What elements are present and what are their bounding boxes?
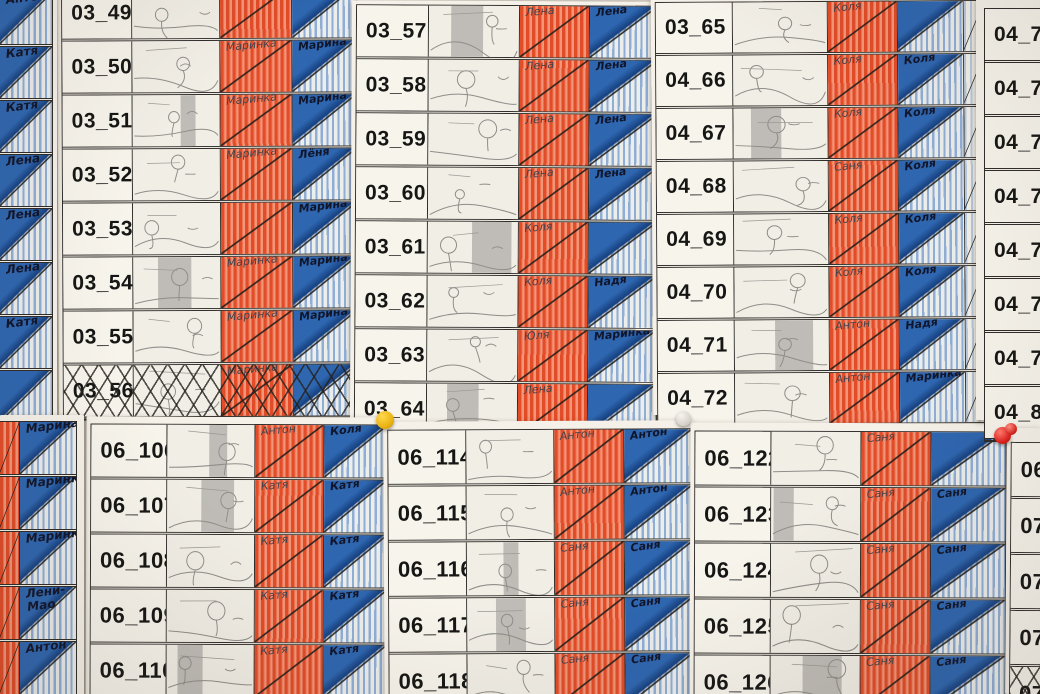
storyboard-thumbnail (428, 168, 519, 219)
orange-status-cell: Маринка (221, 311, 293, 362)
scene-row: 04_70КоляКоля (657, 266, 985, 321)
scene-code-cell: 03_61 (356, 221, 428, 272)
scene-code: 06_124 (704, 557, 771, 583)
blue-assignee-name: Катя (329, 645, 360, 657)
scene-code-cell: 04_73 (985, 9, 1040, 60)
orange-status-cell: Саня (861, 488, 931, 541)
scene-row: 03_59ЛенаЛена (356, 113, 657, 169)
scene-code-cell: 06_107 (91, 479, 167, 531)
storyboard-thumbnail (733, 55, 828, 106)
scene-table: 03_49МаринкаМарина03_50МаринкаМарина03_5… (61, 0, 359, 421)
scene-code: 06_108 (100, 548, 167, 574)
orange-assignee-name: Саня (866, 544, 895, 557)
scene-code: 06_114 (397, 444, 466, 470)
scene-code: 03_52 (72, 163, 133, 187)
scene-code: 04_76 (994, 185, 1040, 209)
blue-status-cell: Лени-Мао (20, 587, 76, 639)
scene-code-cell: 06_123 (695, 487, 771, 540)
scene-code: 03_51 (72, 109, 133, 133)
blue-assignee-name: Саня (630, 653, 661, 666)
scene-code-cell: 04_72 (658, 374, 735, 424)
blue-assignee-name: Марина (298, 202, 348, 215)
sketch-drawing (467, 598, 554, 651)
scene-code: 03_50 (71, 55, 132, 79)
scene-code: 04_70 (666, 281, 727, 305)
blue-status-cell: Антон (625, 485, 693, 538)
sketch-drawing (133, 95, 220, 146)
blue-assignee-name: Саня (630, 597, 661, 610)
storyboard-thumbnail (132, 41, 220, 92)
sketch-drawing (733, 2, 827, 53)
storyboard-thumbnail (133, 203, 221, 254)
scene-row: Маринка (0, 477, 76, 532)
orange-assignee-name: Лена (524, 168, 554, 181)
orange-assignee-name: Маринка (225, 41, 277, 54)
orange-status-cell: Саня (829, 161, 899, 211)
scene-code-cell: 06_108 (91, 534, 167, 586)
blue-status-cell: Саня (931, 488, 1005, 541)
blue-assignee-name: Лени-Мао (25, 587, 76, 613)
blue-status-cell: Коля (899, 213, 965, 263)
scene-row: Лени-Мао (0, 587, 76, 642)
sketch-drawing (427, 276, 517, 327)
orange-status-cell: Коля (828, 55, 898, 105)
sketch-drawing (167, 480, 254, 532)
scene-code-cell: 03_62 (355, 275, 427, 326)
scene-row: 03_54МаринкаМарина (63, 256, 357, 311)
partial-sheet-edge: МаринаМаринкаМаринкаЛени-МаоАнтонКатя (0, 415, 84, 694)
blue-status-cell: Лена (0, 209, 52, 260)
scene-row: Антон (0, 642, 76, 694)
blue-status-cell: Марина (293, 202, 357, 253)
scene-row: 04_78 (985, 279, 1040, 333)
blue-status-cell: Коля (324, 425, 387, 477)
blue-assignee-name: Коля (904, 213, 937, 226)
scene-code-cell: 06_106 (91, 424, 167, 476)
blue-status-cell: Антон (20, 642, 76, 694)
scene-row: Антон (0, 0, 52, 47)
orange-status-cell: Антон (255, 425, 324, 477)
blue-assignee-name: Марина (297, 40, 347, 53)
blue-status-cell: Катя (324, 535, 387, 587)
blue-assignee-name: Саня (936, 488, 967, 500)
orange-status-cell: Маринка (220, 0, 292, 38)
scene-row: 03_60ЛенаЛена (356, 167, 657, 223)
orange-assignee-name: Лена (523, 384, 553, 397)
scene-code: 03_57 (366, 19, 427, 43)
orange-status-cell (0, 477, 20, 529)
blue-status-cell: Марина (20, 422, 76, 474)
scene-row: 04_67КоляКоля (656, 107, 984, 162)
scene-code: 07_ (1020, 512, 1040, 538)
scene-row: 04_66КоляКоля (656, 54, 984, 109)
storyboard-thumbnail (467, 486, 555, 539)
scene-row: 06_106АнтонКоля (91, 424, 387, 480)
scene-code: 03_54 (72, 271, 133, 295)
orange-status-cell: Антон (830, 373, 900, 423)
orange-status-cell (0, 642, 20, 694)
scene-code-cell: 03_53 (63, 203, 133, 254)
blue-status-cell: Лена (0, 155, 52, 206)
scene-code: 04_74 (994, 77, 1040, 101)
storyboard-thumbnail (467, 598, 555, 651)
sketch-drawing (735, 373, 829, 424)
blue-assignee-name: Саня (936, 600, 967, 612)
sketch-drawing (167, 535, 254, 587)
scene-code: 07_ (1019, 680, 1040, 694)
orange-assignee-name: Маринка (226, 95, 278, 108)
scene-row: Лена (0, 209, 52, 263)
scene-code: 04_77 (994, 239, 1040, 263)
scene-code-cell: 04_74 (985, 63, 1040, 114)
orange-assignee-name: Катя (260, 590, 288, 603)
orange-status-cell: Коля (518, 276, 588, 327)
scene-row: 06_108КатяКатя (91, 534, 387, 590)
scene-row: 03_57ЛенаЛена (357, 5, 658, 61)
storyboard-thumbnail (428, 222, 519, 273)
orange-status-cell: Катя (255, 590, 324, 642)
orange-status-cell: Катя (255, 480, 324, 532)
sketch-drawing (134, 365, 221, 416)
sketch-drawing (133, 257, 220, 308)
sketch-drawing (429, 6, 519, 57)
blue-status-cell: Надя (900, 319, 966, 369)
scene-row: 06_109КатяКатя (91, 589, 387, 645)
blue-assignee-name: Коля (329, 425, 362, 437)
sketch-drawing (132, 0, 219, 38)
orange-assignee-name: Саня (866, 432, 895, 445)
orange-assignee-name: Маринка (226, 149, 278, 162)
sketch-drawing (428, 114, 518, 165)
blue-assignee-name: Коля (903, 54, 936, 67)
orange-status-cell: Маринка (222, 365, 294, 416)
blue-status-cell: Лена (0, 263, 52, 314)
scene-row: 06_122Саня (695, 431, 1005, 488)
partial-sheet-edge: АнтонКатяКатяЛенаЛенаЛенаКатя (0, 0, 57, 416)
scene-row: 06_115АнтонАнтон (389, 485, 693, 543)
orange-assignee-name: Саня (560, 654, 589, 667)
scene-code: 04_80 (994, 401, 1040, 425)
production-sheet: 06_114АнтонАнтон06_115АнтонАнтон06_116Са… (383, 420, 695, 694)
blue-status-cell: Саня (625, 653, 693, 694)
storyboard-thumbnail (133, 311, 221, 362)
scene-row: Катя (0, 47, 52, 101)
orange-assignee-name: Саня (560, 542, 589, 555)
orange-status-cell (0, 532, 20, 584)
scene-row: 03_58ЛенаЛена (357, 59, 658, 115)
orange-status-cell: Катя (255, 645, 324, 694)
blue-status-cell: Катя (324, 645, 387, 694)
scene-code-cell: 03_51 (63, 95, 133, 146)
sketch-drawing (167, 590, 254, 642)
scene-code-cell: 04_68 (657, 162, 734, 212)
orange-status-cell: Лена (519, 114, 589, 165)
blue-status-cell (294, 364, 358, 415)
scene-code: 06_125 (704, 613, 771, 639)
blue-assignee-name: Марина (298, 310, 348, 323)
orange-status-cell: Антон (830, 320, 900, 370)
blue-assignee-name: Лена (5, 209, 41, 222)
blue-status-cell: Саня (931, 544, 1005, 597)
orange-assignee-name: Коля (833, 108, 862, 121)
blue-assignee-name: Маринка (25, 477, 76, 490)
scene-code-cell: 03_65 (656, 3, 733, 53)
orange-status-cell: Саня (861, 656, 931, 694)
orange-status-cell: Саня (555, 654, 625, 694)
sketch-drawing (429, 60, 519, 111)
scene-code-cell: 06_122 (695, 431, 771, 484)
scene-row: 07_ (1011, 555, 1040, 611)
orange-assignee-name: Саня (866, 488, 895, 501)
orange-assignee-name: Маринка (227, 365, 279, 378)
scene-code-cell: 06_116 (389, 542, 467, 595)
storyboard-wall-photo: 03_49МаринкаМарина03_50МаринкаМарина03_5… (0, 0, 1040, 694)
sketch-drawing (734, 161, 828, 212)
scene-row: 06_ (1011, 443, 1040, 499)
orange-status-cell: Коля (828, 2, 898, 52)
blue-assignee-name: Лена (595, 114, 628, 126)
blue-status-cell: Маринка (588, 330, 656, 381)
orange-assignee-name: Коля (834, 267, 863, 280)
orange-assignee-name: Катя (260, 480, 288, 493)
scene-row: 04_77 (985, 225, 1040, 279)
blue-assignee-name: Саня (936, 656, 967, 668)
scene-code: 03_60 (365, 181, 426, 205)
sketch-drawing (167, 425, 254, 477)
storyboard-thumbnail (467, 542, 555, 595)
storyboard-thumbnail (167, 535, 255, 587)
scene-code: 04_69 (666, 228, 727, 252)
scene-code-cell: 06_118 (389, 654, 467, 694)
sketch-drawing (132, 41, 219, 92)
orange-assignee-name: Саня (834, 161, 863, 174)
scene-code-cell: 04_71 (658, 321, 735, 371)
scene-code: 03_55 (73, 325, 134, 349)
orange-assignee-name: Юля (523, 330, 549, 343)
blue-assignee-name: Лена (5, 263, 41, 276)
orange-status-cell: Саня (555, 598, 625, 651)
scene-code-cell: 04_79 (985, 333, 1040, 384)
orange-assignee-name: Лена (525, 6, 555, 19)
scene-table: 06_106АнтонКоля06_107КатяКатя06_108КатяК… (89, 423, 388, 694)
orange-status-cell: Антон (555, 486, 625, 539)
scene-row: 07_ (1010, 611, 1040, 667)
blue-assignee-name: Марина (25, 422, 76, 435)
orange-status-cell (0, 422, 20, 474)
orange-assignee-name: Маринка (226, 257, 278, 270)
scene-code-cell: 03_56 (64, 365, 134, 416)
scene-code: 06_ (1021, 456, 1040, 482)
orange-status-cell: Маринка (221, 95, 293, 146)
orange-assignee-name: Коля (524, 222, 553, 235)
scene-code-cell: 04_66 (656, 56, 733, 106)
orange-assignee-name: Катя (260, 645, 288, 658)
production-sheet: 03_65Коля04_66КоляКоля04_67КоляКоля04_68… (651, 0, 988, 415)
orange-assignee-name: Коля (833, 2, 862, 15)
scene-row: 06_114АнтонАнтон (388, 429, 692, 487)
storyboard-thumbnail (735, 373, 830, 424)
blue-status-cell: Антон (0, 0, 52, 44)
orange-status-cell: Саня (861, 544, 931, 597)
scene-code-cell: 03_63 (355, 329, 427, 380)
blue-status-cell: Маринка (900, 372, 966, 422)
blue-assignee-name: Лена (595, 6, 628, 18)
scene-row: 03_56Маринка (64, 364, 358, 419)
scene-row: 04_71АнтонНадя (658, 319, 986, 374)
production-sheet: 03_49МаринкаМарина03_50МаринкаМарина03_5… (57, 0, 357, 417)
orange-status-cell: Саня (555, 542, 625, 595)
blue-assignee-name: Коля (903, 107, 936, 120)
scene-table: 06_07_07_07_07_ (1009, 442, 1040, 694)
scene-code-cell: 07_ (1010, 667, 1040, 694)
storyboard-thumbnail (167, 645, 255, 694)
sketch-drawing (733, 55, 827, 106)
blue-status-cell: Маринка (20, 532, 76, 584)
storyboard-thumbnail (771, 488, 861, 541)
orange-status-cell: Маринка (221, 149, 293, 200)
orange-assignee-name: Антон (260, 425, 296, 438)
storyboard-thumbnail (429, 60, 520, 111)
scene-row: 03_63ЮляМаринка (355, 329, 656, 385)
scene-code: 06_123 (704, 501, 771, 527)
blue-status-cell: Катя (0, 317, 52, 368)
blue-assignee-name: Маринка (593, 330, 650, 342)
blue-status-cell: Марина (292, 0, 356, 38)
sketch-drawing (428, 168, 518, 219)
sketch-drawing (133, 203, 220, 254)
scene-code-cell: 06_117 (389, 598, 467, 651)
scene-code: 03_53 (72, 217, 133, 241)
scene-code: 03_56 (73, 379, 134, 403)
scene-code: 04_67 (665, 122, 726, 146)
blue-status-cell: Коля (899, 266, 965, 316)
scene-row: 04_69КоляКоля (657, 213, 985, 268)
blue-assignee-name: Антон (5, 0, 47, 6)
blue-assignee-name: Марина (298, 94, 348, 107)
sketch-drawing (167, 645, 254, 694)
orange-assignee-name: Антон (835, 373, 871, 386)
blue-status-cell: Лена (589, 114, 657, 165)
orange-status-cell: Саня (861, 432, 931, 485)
scene-code-cell: 06_124 (695, 543, 771, 596)
scene-row: 06_117СаняСаня (389, 597, 693, 655)
scene-code-cell: 04_77 (985, 225, 1040, 276)
scene-table: 03_65Коля04_66КоляКоля04_67КоляКоля04_68… (655, 0, 988, 428)
sketch-drawing (427, 330, 517, 381)
scene-code-cell: 04_78 (985, 279, 1040, 330)
storyboard-thumbnail (771, 656, 861, 694)
orange-assignee-name: Лена (525, 60, 555, 73)
blue-assignee-name: Лена (5, 155, 41, 168)
blue-assignee-name: Маринка (905, 372, 962, 385)
scene-code-cell: 04_70 (657, 268, 734, 318)
scene-code-cell: 06_109 (91, 589, 167, 641)
storyboard-thumbnail (428, 114, 519, 165)
scene-code-cell: 04_75 (985, 117, 1040, 168)
scene-code-cell: 04_67 (656, 109, 733, 159)
orange-status-cell: Антон (554, 430, 624, 483)
orange-assignee-name: Саня (866, 600, 895, 613)
storyboard-thumbnail (429, 6, 520, 57)
scene-row: 03_49МаринкаМарина (62, 0, 356, 42)
scene-row: 06_107КатяКатя (91, 479, 387, 535)
scene-row: Марина (0, 422, 76, 477)
sketch-drawing (735, 320, 829, 371)
orange-status-cell: Саня (861, 600, 931, 653)
scene-code-cell: 07_ (1010, 611, 1040, 664)
scene-row: 03_62КоляНадя (355, 275, 656, 331)
scene-code: 06_110 (100, 658, 167, 684)
orange-status-cell (221, 203, 293, 254)
blue-assignee-name: Лёня (298, 148, 330, 161)
scene-code: 04_68 (666, 175, 727, 199)
storyboard-thumbnail (734, 161, 829, 212)
scene-code: 06_116 (398, 556, 467, 582)
orange-assignee-name: Коля (834, 214, 863, 227)
scene-table: 03_57ЛенаЛена03_58ЛенаЛена03_59ЛенаЛена0… (354, 4, 659, 440)
scene-code-cell: 07_ (1011, 555, 1040, 608)
storyboard-thumbnail (734, 214, 829, 265)
scene-code-cell: 03_50 (62, 41, 132, 92)
scene-row: 03_50МаринкаМарина (62, 40, 356, 95)
orange-status-cell (0, 587, 20, 639)
blue-assignee-name: Лена (595, 60, 628, 72)
sketch-drawing (734, 214, 828, 265)
scene-code: 04_66 (665, 69, 726, 93)
storyboard-thumbnail (133, 149, 221, 200)
scene-code-cell: 03_59 (356, 113, 428, 164)
scene-code: 04_75 (994, 131, 1040, 155)
blue-assignee-name: Марина (298, 256, 348, 269)
blue-status-cell: Катя (324, 590, 387, 642)
scene-code-cell: 03_49 (62, 0, 132, 39)
orange-assignee-name: Катя (260, 535, 288, 548)
orange-status-cell: Коля (519, 222, 589, 273)
scene-row: Маринка (0, 532, 76, 587)
scene-row: 06_123СаняСаня (695, 487, 1005, 544)
blue-status-cell: Коля (899, 160, 965, 210)
scene-code: 03_62 (364, 289, 425, 313)
scene-code-cell: 07_ (1011, 499, 1040, 552)
orange-assignee-name: Антон (560, 486, 596, 499)
scene-row: 03_52МаринкаЛёня (63, 148, 357, 203)
scene-row: 06_125СаняСаня (695, 599, 1005, 656)
scene-code-cell: 06_115 (389, 486, 467, 539)
sketch-drawing (428, 222, 518, 273)
blue-status-cell: Коля (898, 54, 964, 104)
orange-status-cell: Лена (520, 60, 590, 111)
orange-assignee-name: Коля (833, 55, 862, 68)
partial-sheet-edge: 06_07_07_07_07_ (1005, 428, 1040, 694)
blue-status-cell: Катя (0, 47, 52, 98)
scene-code-cell: 06_125 (695, 599, 771, 652)
scene-code: 04_79 (994, 347, 1040, 371)
storyboard-thumbnail (132, 0, 220, 38)
blue-assignee-name: Катя (329, 590, 360, 602)
blue-status-cell: Лена (590, 60, 658, 111)
orange-status-cell: Коля (829, 214, 899, 264)
scene-code: 04_78 (994, 293, 1040, 317)
blue-assignee-name: Коля (904, 160, 937, 173)
blue-assignee-name: Катя (5, 47, 39, 60)
blue-assignee-name: Катя (5, 317, 39, 330)
orange-assignee-name: Коля (524, 276, 553, 289)
storyboard-thumbnail (427, 330, 518, 381)
blue-status-cell: Саня (931, 656, 1005, 694)
scene-code-cell: 03_57 (357, 5, 429, 56)
sketch-drawing (133, 149, 220, 200)
sketch-drawing (467, 486, 554, 539)
